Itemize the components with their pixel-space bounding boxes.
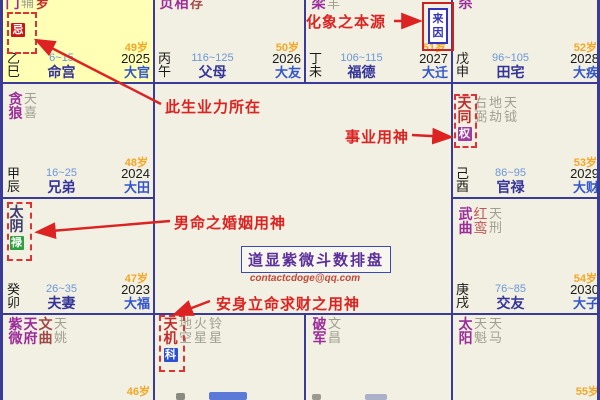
divider — [3, 197, 154, 199]
palace-cell-jiaoyou[interactable]: 武曲 红鸾 天刑 54岁 庚戌 76~85 2030 交友 大子 — [452, 197, 600, 313]
palace-cell-tianzhai[interactable]: 杀 52岁 戊申 96~105 2028 田宅 大疾 — [452, 0, 600, 82]
star: 门 — [5, 0, 20, 10]
year: 2030 — [543, 283, 599, 296]
star: 杀 — [458, 0, 473, 10]
palace-info: 52岁 戊申 96~105 2028 田宅 大疾 — [456, 39, 599, 80]
annotation-karma: 此生业力所在 — [165, 96, 261, 117]
star: 天钺 — [503, 96, 518, 124]
palace-cell-fumu[interactable]: 贞 相 存 50岁 丙午 116~125 2026 父母 大友 — [154, 0, 305, 82]
star: 文昌 — [327, 317, 342, 345]
palace-name: 父母 — [180, 65, 245, 80]
watermark: 道显紫微斗数排盘 — [241, 246, 391, 273]
star: 天府 — [23, 317, 38, 345]
annotation-wealth: 安身立命求财之用神 — [216, 293, 360, 314]
annotation-origin: 化象之本源 — [306, 11, 386, 32]
year: 2024 — [94, 167, 150, 180]
palace-name: 福德 — [331, 65, 392, 80]
divider — [452, 197, 600, 199]
star: 存 — [189, 0, 204, 11]
laiyin-marker: 来因 — [428, 8, 448, 44]
annotation-career: 事业用神 — [345, 126, 409, 147]
highlight-box-lu — [7, 202, 32, 261]
stem-branch: 丙午 — [158, 52, 180, 80]
year: 2023 — [94, 283, 150, 296]
stem-branch: 丁未 — [309, 52, 331, 80]
decade-label: 大迁 — [392, 65, 448, 80]
palace-info: 50岁 丙午 116~125 2026 父母 大友 — [158, 39, 301, 80]
year: 2028 — [543, 52, 599, 65]
clipped-text — [176, 393, 185, 400]
palace-name: 官禄 — [478, 180, 543, 195]
stem-branch: 戊申 — [456, 52, 478, 80]
divider — [451, 0, 453, 400]
palace-cell-yin[interactable]: 紫微 天府 文曲 天姚 46岁 — [3, 313, 154, 400]
clipped-text — [365, 394, 387, 400]
age: 46岁 — [127, 383, 150, 399]
palace-info: 53岁 己酉 86~95 2029 官禄 大财 — [456, 154, 599, 195]
star: 红鸾 — [473, 207, 488, 235]
palace-info: 47岁 癸卯 26~35 2023 夫妻 大福 — [7, 270, 150, 311]
star: 天刑 — [488, 207, 503, 235]
decade-label: 大子 — [543, 296, 599, 311]
divider — [3, 82, 600, 84]
palace-cell-hai[interactable]: 太阳 天魁 天马 55岁 — [452, 313, 600, 400]
highlight-box-quan — [454, 94, 477, 148]
highlight-box-ji — [7, 12, 37, 54]
annotation-marriage: 男命之婚姻用神 — [174, 212, 286, 233]
year: 2027 — [392, 52, 448, 65]
star: 梁 — [311, 0, 326, 10]
decade-label: 大田 — [94, 180, 150, 195]
star: 地劫 — [488, 96, 503, 124]
decade-label: 大财 — [543, 180, 599, 195]
highlight-box-ke — [159, 315, 185, 372]
star: 文曲 — [38, 317, 53, 345]
stem-branch: 癸卯 — [7, 283, 29, 311]
divider — [304, 313, 306, 400]
palace-name: 夫妻 — [29, 296, 94, 311]
year: 2025 — [94, 52, 150, 65]
palace-info: 54岁 庚戌 76~85 2030 交友 大子 — [456, 270, 599, 311]
stem-branch: 甲辰 — [7, 167, 29, 195]
star: 贞 — [159, 0, 174, 10]
palace-name: 田宅 — [478, 65, 543, 80]
decade-label: 大疾 — [543, 65, 599, 80]
star: 天喜 — [23, 92, 38, 120]
star: 相 — [174, 0, 189, 10]
divider — [153, 0, 155, 400]
stem-branch: 庚戌 — [456, 283, 478, 311]
palace-name: 命宫 — [29, 65, 94, 80]
star: 天马 — [488, 317, 503, 345]
stem-branch: 己酉 — [456, 167, 478, 195]
star: 武曲 — [458, 207, 473, 235]
palace-cell-xiongdi[interactable]: 贪狼 天喜 48岁 甲辰 16~25 2024 兄弟 大田 — [3, 82, 154, 197]
decade-label: 大官 — [94, 65, 150, 80]
star: 天姚 — [53, 317, 68, 345]
decade-label: 大福 — [94, 296, 150, 311]
star: 太阳 — [458, 317, 473, 345]
star: 破军 — [312, 317, 327, 345]
palace-cell-zi[interactable]: 破军 文昌 — [305, 313, 452, 400]
star: 贪狼 — [8, 92, 23, 120]
contact-email: contactcdoge@qq.com — [235, 273, 375, 284]
star: 紫微 — [8, 317, 23, 345]
star: 铃星 — [208, 317, 223, 345]
year: 2026 — [245, 52, 301, 65]
age: 55岁 — [576, 383, 599, 399]
clipped-text — [312, 394, 321, 400]
palace-info: 48岁 甲辰 16~25 2024 兄弟 大田 — [7, 154, 150, 195]
star: 罗 — [35, 0, 50, 11]
palace-name: 兄弟 — [29, 180, 94, 195]
star: 羊 — [326, 0, 341, 11]
year: 2029 — [543, 167, 599, 180]
star: 火星 — [193, 317, 208, 345]
ziwei-chart: 门 辅 罗 忌 49岁 乙巳 6~15 2025 命宫 大官 贞 相 存 50岁… — [0, 0, 600, 400]
clipped-highlight — [209, 392, 247, 400]
stem-branch: 乙巳 — [7, 52, 29, 80]
star: 天魁 — [473, 317, 488, 345]
star: 辅 — [20, 0, 35, 10]
decade-label: 大友 — [245, 65, 301, 80]
palace-name: 交友 — [478, 296, 543, 311]
